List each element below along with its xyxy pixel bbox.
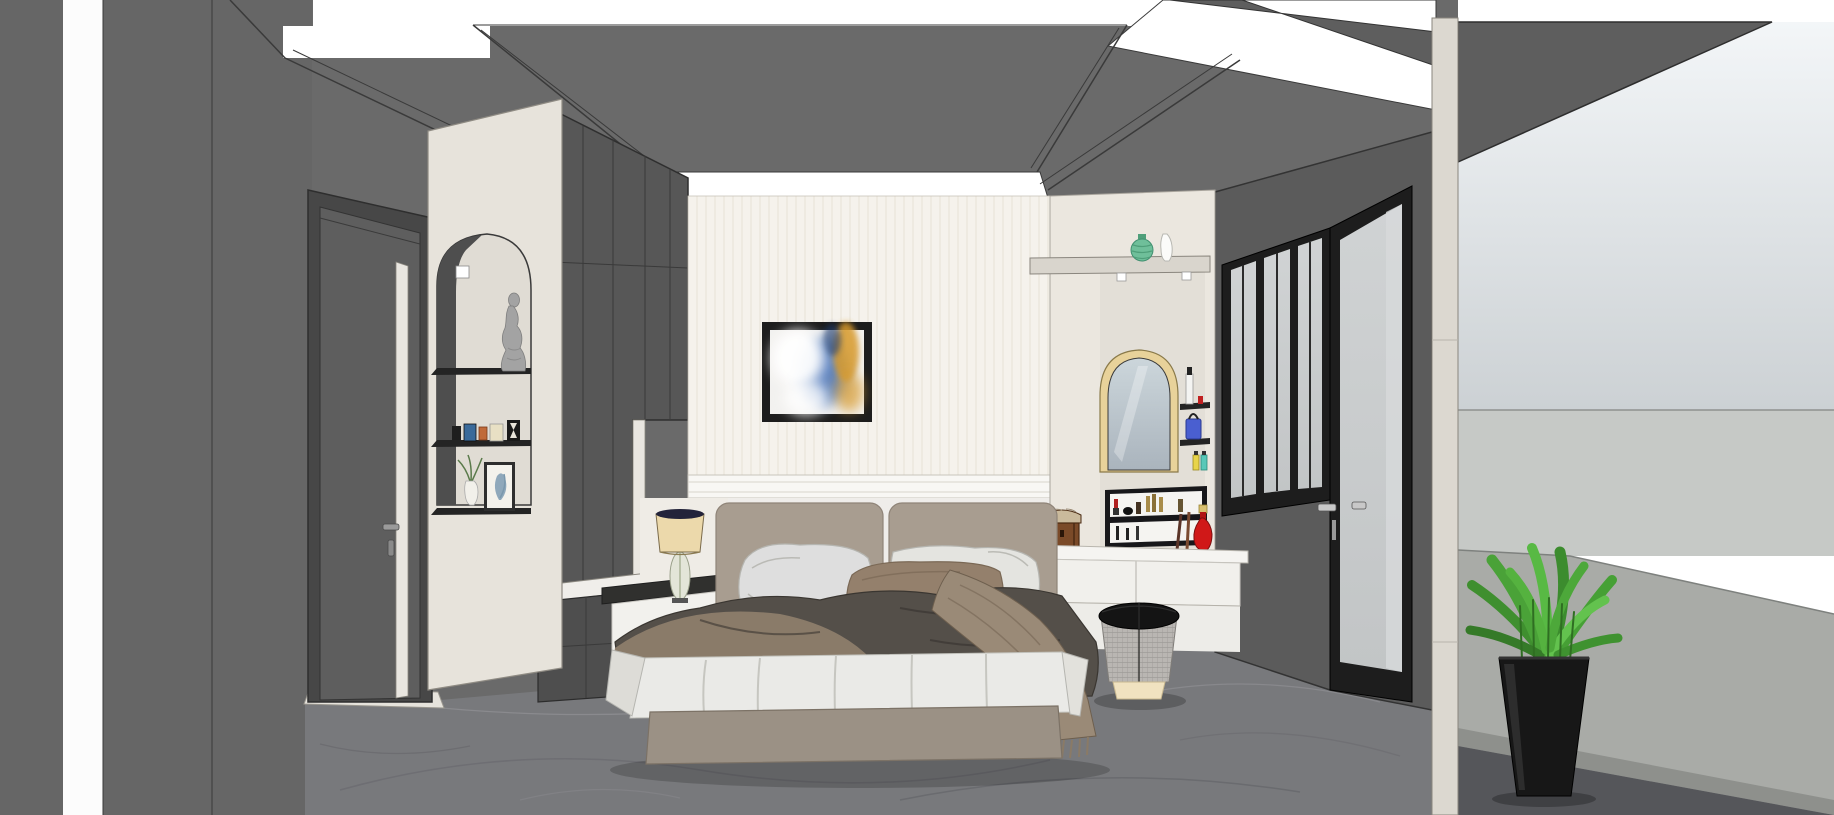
teal-bottle — [1201, 455, 1207, 470]
makeup-brush — [1187, 512, 1189, 550]
mascara-wand — [1136, 526, 1139, 540]
mascara-wand — [1116, 526, 1119, 540]
window — [1222, 228, 1330, 516]
lamp-shade-rim — [656, 509, 704, 519]
niche-spotlight — [456, 266, 469, 278]
desk-drawers — [1036, 559, 1240, 606]
door-handle — [1352, 502, 1366, 509]
corner-column — [1432, 18, 1458, 815]
door-handle — [1318, 504, 1336, 511]
display-shelf — [1030, 256, 1210, 274]
ceiling-light-band — [313, 0, 1163, 26]
bottle-cap — [1202, 451, 1206, 455]
mini-frame — [452, 426, 461, 440]
niche-column — [428, 99, 562, 690]
yellow-bottle — [1193, 455, 1199, 470]
vanity-mirror — [1100, 350, 1178, 472]
spray-bottle — [1186, 374, 1193, 404]
parapet-wall — [1458, 410, 1834, 556]
exterior-top-band — [1458, 0, 1834, 22]
gold-lipstick — [1152, 494, 1156, 512]
chest-keyhole — [1060, 530, 1064, 537]
mini-frame — [490, 424, 503, 441]
gold-lipstick — [1159, 497, 1163, 512]
mini-frame — [464, 424, 476, 441]
abstract-art — [762, 322, 872, 422]
spray-cap — [1187, 367, 1192, 375]
makeup-bottle — [1136, 502, 1141, 514]
vanity-column — [1030, 190, 1248, 652]
wall-molding — [688, 475, 1050, 498]
scene-canvas — [0, 0, 1834, 815]
niche-shelf — [431, 440, 531, 447]
lipstick-base — [1113, 508, 1119, 515]
bedroom-render — [0, 0, 1834, 815]
lamp-shade — [656, 514, 704, 552]
ceiling-light-step — [283, 26, 490, 58]
gold-lipstick — [1146, 496, 1150, 512]
door-handle — [383, 524, 399, 530]
door-keyplate — [388, 540, 394, 556]
bottle-cap — [1194, 451, 1198, 455]
art-white-cloud — [772, 330, 824, 386]
downlight — [1182, 272, 1191, 280]
art-navy-streak — [823, 324, 841, 356]
art-gold-swirl — [835, 372, 863, 412]
niche-shelf — [431, 508, 531, 515]
blue-perfume — [1186, 419, 1201, 439]
stool-base — [1113, 682, 1165, 699]
bed-base — [646, 706, 1062, 764]
lamp-foot — [672, 598, 688, 603]
bud-vase — [465, 481, 478, 505]
interior-door — [308, 190, 432, 702]
left-wall — [0, 0, 312, 815]
green-vase-neck — [1138, 234, 1146, 239]
downlight — [1117, 273, 1126, 281]
left-wall-light-slot — [63, 0, 103, 815]
red-mini-bottle — [1198, 396, 1203, 404]
perfume-cap — [1199, 505, 1207, 513]
statue-head — [509, 293, 520, 307]
mini-frame — [479, 427, 487, 440]
cove-light — [642, 172, 1048, 198]
glass-door-sidelight — [1386, 204, 1402, 672]
glass-door — [1318, 186, 1412, 702]
makeup-organizer — [1105, 486, 1207, 548]
door-inlay-stripe — [396, 262, 408, 698]
art-white-cloud — [784, 380, 828, 416]
makeup-jar — [1123, 507, 1133, 515]
mascara-wand — [1126, 528, 1129, 540]
makeup-bottle — [1178, 499, 1183, 512]
door-lock-plate — [1332, 520, 1336, 540]
